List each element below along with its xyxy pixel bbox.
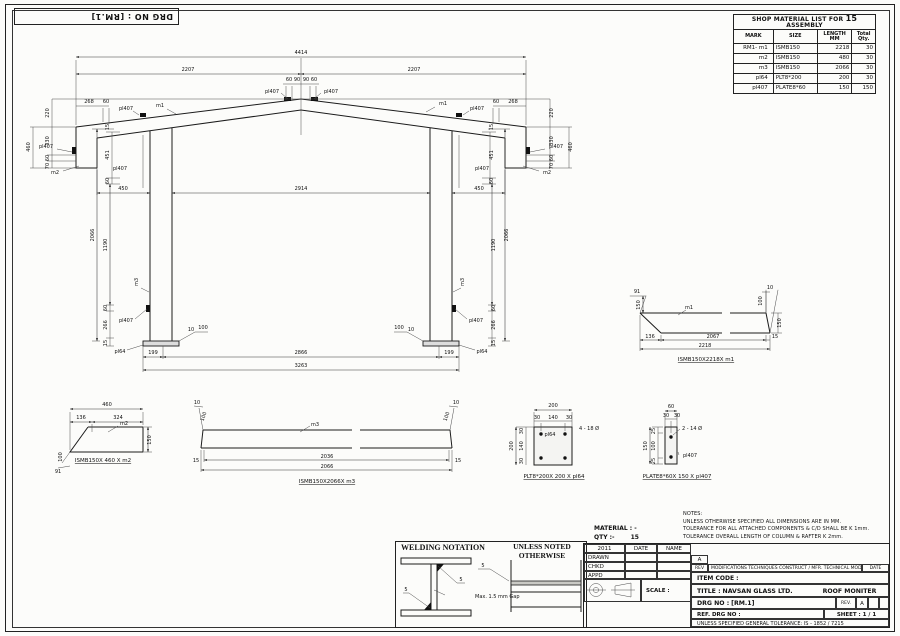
notes-title: NOTES: xyxy=(683,511,888,519)
pl64-dim-30-lb: 30 xyxy=(519,458,525,464)
pl407-dim-60: 60 xyxy=(668,404,674,410)
dim-220-l: 220 xyxy=(45,108,51,118)
detail-pl64: 200 30 140 30 200 30 140 30 pl64 4 - 18 … xyxy=(509,403,599,480)
col-size: SIZE xyxy=(773,30,817,44)
pl64-dim-30-tl: 30 xyxy=(534,415,540,421)
dim-ridge-90-r: 90 xyxy=(303,77,309,83)
label-pl407-eave-r: pl407 xyxy=(470,106,484,112)
dim-half-right: 2207 xyxy=(408,67,421,73)
dim-15-base-l: 15 xyxy=(103,340,109,346)
dim-450-l: 450 xyxy=(118,186,128,192)
dim-60-inner-l: 60 xyxy=(105,178,111,184)
pl407-dim-25-t: 25 xyxy=(651,428,657,434)
dim-15-base-r: 15 xyxy=(491,340,497,346)
row4-qty: 150 xyxy=(852,84,876,94)
dim-100-base-l: 100 xyxy=(198,325,208,331)
m2-dim-total: 460 xyxy=(102,402,112,408)
drawing-sheet: 4414 2207 2207 60 90 90 60 pl407 pl407 2… xyxy=(0,0,900,636)
dim-15-eave-r: 15 xyxy=(489,124,495,130)
dim-451-r: 451 xyxy=(489,150,495,160)
scale-label: SCALE : xyxy=(641,579,691,602)
m3-dim-100-l: 100 xyxy=(200,411,209,422)
dim-70-l: 70 xyxy=(45,163,51,169)
dim-451-l: 451 xyxy=(105,150,111,160)
dim-60-l: 60 xyxy=(45,155,51,161)
pl64-dim-140-l: 140 xyxy=(519,441,525,451)
col-length: LENGTH MM xyxy=(817,30,852,44)
row3-qty: 30 xyxy=(852,74,876,84)
dim-460-r: 460 xyxy=(568,142,574,152)
note-line-1: UNLESS OTHERWISE SPECIFIED ALL DIMENSION… xyxy=(683,519,888,527)
pl407-holes-note: 2 - 14 Ø xyxy=(682,425,702,432)
dim-60-r: 60 xyxy=(549,155,555,161)
row2-qty: 30 xyxy=(852,64,876,74)
material-title-suffix: ASSEMBLY xyxy=(786,22,823,29)
row1-mark: m2 xyxy=(734,54,774,64)
dim-15-eave-l: 15 xyxy=(105,124,111,130)
drg-no-box: DRG NO : [RM.1] xyxy=(14,8,179,25)
tolerance-row: UNLESS SPECIFIED GENERAL TOLERANCE: IS -… xyxy=(691,619,889,627)
chkd-date xyxy=(625,562,657,571)
dim-266-r: 266 xyxy=(491,320,497,330)
m3-caption: ISMB150X2066X m3 xyxy=(299,479,356,485)
dim-450-r: 450 xyxy=(474,186,484,192)
pl407-dim-150: 150 xyxy=(643,441,649,451)
pl407-dim-25-b: 25 xyxy=(651,458,657,464)
row0-size: ISMB150 xyxy=(773,44,817,54)
column-plate-left xyxy=(146,305,150,312)
material-list-table: SHOP MATERIAL LIST FOR 15 ASSEMBLY MARK … xyxy=(733,14,876,94)
m1-dim-150-left: 150 xyxy=(636,300,642,310)
m1-dim-136: 136 xyxy=(645,334,655,340)
table-row: RM1- m1 ISMB150 2218 30 xyxy=(734,44,876,54)
dim-eave-268-l: 268 xyxy=(84,99,94,105)
dim-10-base-r: 10 xyxy=(408,327,414,333)
dim-ridge-60-r: 60 xyxy=(311,77,317,83)
unless-noted-otherwise: UNLESS NOTED OTHERWISE xyxy=(500,543,584,560)
drawing-title: ROOF MONITER xyxy=(823,588,877,595)
column-plate-right xyxy=(452,305,456,312)
sheet-cell: SHEET : 1 / 1 xyxy=(824,609,889,619)
pl64-dim-200-left: 200 xyxy=(509,441,515,451)
dim-2066-l: 2066 xyxy=(90,229,96,242)
label-m3-left: m3 xyxy=(134,278,140,286)
col-mark: MARK xyxy=(734,30,774,44)
material-qty-block: MATERIAL : - QTY :- 15 xyxy=(594,524,639,542)
col-qty-2: Qty. xyxy=(858,36,869,42)
m3-dim-100-r: 100 xyxy=(443,411,452,422)
dim-ridge-60-l: 60 xyxy=(286,77,292,83)
pl64-caption: PLT8*200X 200 X pl64 xyxy=(523,474,585,480)
m3-dim-10-r: 10 xyxy=(453,400,459,406)
table-row: pl407 PLATE8*60 150 150 xyxy=(734,84,876,94)
m1-dim-100: 100 xyxy=(758,296,764,306)
row0-length: 2218 xyxy=(817,44,852,54)
drg-no-row: DRG NO : [RM.1] xyxy=(691,597,836,609)
note-line-2: TOLERANCE FOR ALL ATTACHED COMPONENTS & … xyxy=(683,526,888,534)
dim-eave-60-l: 60 xyxy=(103,99,109,105)
ref-drg-row: REF. DRG NO : xyxy=(691,609,824,619)
dim-1190-l: 1190 xyxy=(103,239,109,252)
drawn-row: DRAWN xyxy=(584,553,625,562)
pl64-holes-note: 4 - 18 Ø xyxy=(579,425,599,432)
dim-100-base-r: 100 xyxy=(394,325,404,331)
dim-eave-268-r: 268 xyxy=(508,99,518,105)
label-m2-right: m2 xyxy=(543,170,551,176)
dim-1190-r: 1190 xyxy=(491,239,497,252)
appd-date xyxy=(625,571,657,579)
m1-dim-10: 10 xyxy=(767,285,773,291)
dim-total-width: 4414 xyxy=(295,50,308,56)
drg-no-value: [RM.1] xyxy=(731,600,754,607)
detail-m1: 91 150 10 100 150 m1 136 2067 15 2218 IS… xyxy=(630,285,783,363)
dim-3263: 3263 xyxy=(295,363,308,369)
row0-qty: 30 xyxy=(852,44,876,54)
pl64-label: pl64 xyxy=(545,432,556,438)
m2-dim-136: 136 xyxy=(76,415,86,421)
approval-table: 2011 DATE NAME DRAWN CHKD APPD xyxy=(584,544,691,579)
m1-dim-2067: 2067 xyxy=(707,334,720,340)
appd-name xyxy=(657,571,691,579)
row3-mark: pl64 xyxy=(734,74,774,84)
rev-empty-1 xyxy=(868,597,879,609)
drawn-date xyxy=(625,553,657,562)
name-header: NAME xyxy=(657,544,691,553)
row1-length: 480 xyxy=(817,54,852,64)
rev-header: REV xyxy=(691,564,708,572)
title-label: TITLE : xyxy=(692,588,721,595)
drg-no-text: DRG NO : [RM.1] xyxy=(15,9,178,24)
dim-eave-60-r: 60 xyxy=(493,99,499,105)
pl407-dim-100: 100 xyxy=(651,441,657,451)
col-length-2: MM xyxy=(830,36,840,42)
row2-mark: m3 xyxy=(734,64,774,74)
row0-mark: RM1- m1 xyxy=(734,44,774,54)
mods-date-header: DATE xyxy=(862,564,889,572)
dim-220-r: 220 xyxy=(549,108,555,118)
qty-value: 15 xyxy=(631,534,639,541)
note-line-3: TOLERANCE OVERALL LENGTH OF COLUMN & RAF… xyxy=(683,534,888,542)
table-row: pl64 PLT8*200 200 30 xyxy=(734,74,876,84)
m2-dim-150: 150 xyxy=(147,435,153,445)
m1-dim-15: 15 xyxy=(772,334,778,340)
label-pl407-ridge-l: pl407 xyxy=(265,89,279,95)
dim-60-inner-r: 60 xyxy=(489,178,495,184)
qty-label: QTY :- xyxy=(594,534,615,541)
rev-a-cell: A xyxy=(691,555,708,564)
m1-label: m1 xyxy=(685,305,693,311)
label-pl407-cap-r: pl407 xyxy=(549,144,563,150)
title-block: 2011 DATE NAME DRAWN CHKD APPD SCALE : xyxy=(583,543,890,628)
pl64-dim-30-lt: 30 xyxy=(519,428,525,434)
label-pl407-inner-l: pl407 xyxy=(113,166,127,172)
dim-460-l: 460 xyxy=(26,142,32,152)
m2-dim-91: 91 xyxy=(55,469,61,475)
dim-199-r: 199 xyxy=(444,350,454,356)
year-cell: 2011 xyxy=(584,544,625,553)
label-pl64-r: pl64 xyxy=(477,349,488,355)
row4-length: 150 xyxy=(817,84,852,94)
pl407-dim-30-l: 30 xyxy=(663,413,669,419)
title-row: TITLE : NAVSAN GLASS LTD. ROOF MONITER xyxy=(691,584,889,597)
detail-m3: 10 100 10 100 m3 15 2036 15 2066 ISMB150… xyxy=(193,400,461,485)
dim-60-col-r: 60 xyxy=(491,305,497,311)
row2-length: 2066 xyxy=(817,64,852,74)
label-m1-right: m1 xyxy=(439,101,447,107)
row1-size: ISMB150 xyxy=(773,54,817,64)
eave-plate-right xyxy=(456,113,462,117)
m2-caption: ISMB150X 460 X m2 xyxy=(75,458,131,464)
pl407-dim-30-r: 30 xyxy=(674,413,680,419)
dim-266-l: 266 xyxy=(103,320,109,330)
m1-dim-150-right: 150 xyxy=(777,318,783,328)
m3-dim-10-l: 10 xyxy=(194,400,200,406)
m1-dim-total: 2218 xyxy=(699,343,712,349)
projection-symbol-icon xyxy=(585,580,640,601)
projection-cell xyxy=(584,579,641,602)
table-row: m3 ISMB150 2066 30 xyxy=(734,64,876,74)
m3-dim-inner: 2036 xyxy=(321,454,334,460)
drawn-name xyxy=(657,553,691,562)
m1-dim-91: 91 xyxy=(634,289,640,295)
row3-size: PLT8*200 xyxy=(773,74,817,84)
modifications-header: MODIFICATIONS TECHNIQUES CONSTRUCT / MFR… xyxy=(708,564,862,572)
label-pl407-cap-l: pl407 xyxy=(39,144,53,150)
pl64-dim-140-t: 140 xyxy=(548,415,558,421)
dim-60-col-l: 60 xyxy=(103,305,109,311)
rev-empty-2 xyxy=(879,597,889,609)
m3-dim-15-l: 15 xyxy=(193,458,199,464)
rev-value: A xyxy=(856,597,868,609)
row3-length: 200 xyxy=(817,74,852,84)
pl64-dim-200-top: 200 xyxy=(548,403,558,409)
cap-plate-left xyxy=(72,147,76,154)
dim-2914: 2914 xyxy=(295,186,308,192)
dim-ridge-90-l: 90 xyxy=(294,77,300,83)
dim-10-base-l: 10 xyxy=(188,327,194,333)
label-m1-left: m1 xyxy=(156,103,164,109)
m3-dim-15-r: 15 xyxy=(455,458,461,464)
col-qty: Total Qty. xyxy=(852,30,876,44)
chkd-name xyxy=(657,562,691,571)
date-header: DATE xyxy=(625,544,657,553)
chkd-row: CHKD xyxy=(584,562,625,571)
row4-mark: pl407 xyxy=(734,84,774,94)
m2-dim-100: 100 xyxy=(58,452,64,462)
empty-cell xyxy=(584,602,691,627)
dim-70-r: 70 xyxy=(549,163,555,169)
label-pl407-inner-r: pl407 xyxy=(475,166,489,172)
material-list-header: MARK SIZE LENGTH MM Total Qty. xyxy=(734,30,876,44)
label-pl64-l: pl64 xyxy=(115,349,126,355)
pl64-dim-30-tr: 30 xyxy=(566,415,572,421)
m3-dim-total: 2066 xyxy=(321,464,334,470)
label-pl407-col-l: pl407 xyxy=(119,318,133,324)
label-pl407-eave-l: pl407 xyxy=(119,106,133,112)
pl407-label: pl407 xyxy=(683,453,697,459)
detail-m2: 460 136 324 m2 150 100 91 ISMB150X 460 X… xyxy=(55,402,153,475)
dim-2866: 2866 xyxy=(295,350,308,356)
material-label: MATERIAL : - xyxy=(594,524,639,533)
dim-199-l: 199 xyxy=(148,350,158,356)
row1-qty: 30 xyxy=(852,54,876,64)
m1-caption: ISMB150X2218X m1 xyxy=(678,357,734,363)
row2-size: ISMB150 xyxy=(773,64,817,74)
table-row: m2 ISMB150 480 30 xyxy=(734,54,876,64)
rev-col-label: REV. xyxy=(836,597,856,609)
unless-line2: OTHERWISE xyxy=(519,551,565,560)
dim-half-left: 2207 xyxy=(182,67,195,73)
welding-notation-title: WELDING NOTATION xyxy=(401,543,485,552)
pl407-caption: PLATE8*60X 150 X pl407 xyxy=(643,474,712,480)
appd-row: APPD xyxy=(584,571,625,579)
notes-block: NOTES: UNLESS OTHERWISE SPECIFIED ALL DI… xyxy=(683,511,888,541)
item-code-row: ITEM CODE : xyxy=(691,572,889,584)
row4-size: PLATE8*60 xyxy=(773,84,817,94)
cap-plate-right xyxy=(526,147,530,154)
detail-pl407: 60 30 30 150 25 100 25 2 - 14 Ø pl407 PL… xyxy=(643,404,712,480)
m2-label: m2 xyxy=(120,421,128,427)
label-pl407-ridge-r: pl407 xyxy=(324,89,338,95)
drg-no-label: DRG NO : xyxy=(692,600,729,607)
label-pl407-col-r: pl407 xyxy=(469,318,483,324)
dim-2066-r: 2066 xyxy=(504,229,510,242)
material-title-qty: 15 xyxy=(846,14,858,23)
label-m2-left: m2 xyxy=(51,170,59,176)
eave-plate-left xyxy=(140,113,146,117)
material-list-title: SHOP MATERIAL LIST FOR 15 ASSEMBLY xyxy=(734,15,876,30)
label-m3-right: m3 xyxy=(460,278,466,286)
m3-label: m3 xyxy=(311,422,319,428)
company-name: NAVSAN GLASS LTD. xyxy=(723,588,793,595)
